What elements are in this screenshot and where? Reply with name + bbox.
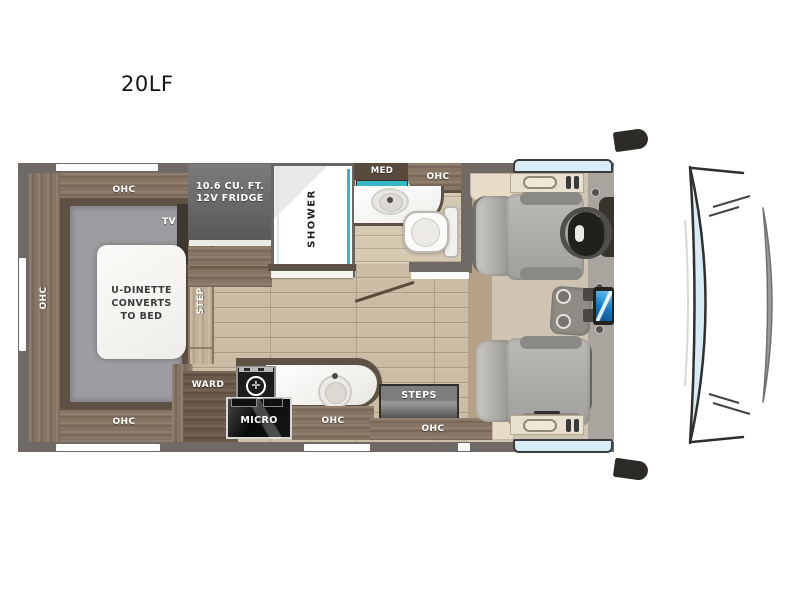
shower-sill — [271, 271, 353, 278]
steering-wheel-badge — [575, 225, 584, 242]
door-handle-bottom — [523, 419, 557, 432]
fridge-counter-edge — [189, 240, 271, 246]
hood-line — [685, 220, 688, 386]
window — [304, 444, 370, 451]
door-latch-icon — [574, 419, 579, 432]
steering-wheel-hub — [568, 212, 604, 256]
side-mirror-top — [613, 128, 649, 153]
dinette-label: U-DINETTE CONVERTS TO BED — [97, 284, 186, 323]
shower-sill-dark — [268, 264, 356, 271]
shower-glass-edge — [277, 169, 279, 265]
cab-window-bottom — [513, 439, 613, 453]
micro-label: MICRO — [226, 415, 292, 426]
accent-line — [709, 207, 739, 216]
door-latch-icon — [574, 176, 579, 189]
toilet-seat — [411, 218, 440, 247]
dinette-label-line2: CONVERTS — [97, 297, 186, 310]
faucet-icon — [332, 373, 338, 379]
fridge-label: 10.6 CU. FT. 12V FRIDGE — [188, 181, 272, 205]
dash-vent-icon — [591, 188, 600, 197]
window — [56, 164, 158, 171]
fridge-drawer-seam — [190, 266, 270, 268]
door-latch-icon — [566, 419, 571, 432]
ohc-label-bath: OHC — [408, 172, 468, 182]
dash-vent-icon — [595, 325, 604, 334]
window — [56, 444, 160, 451]
faucet-icon — [387, 197, 393, 203]
ohc-label-top-left: OHC — [60, 185, 188, 195]
cupholder-icon — [556, 314, 571, 329]
ohc-label-entry: OHC — [370, 424, 496, 434]
cab-window-top — [513, 159, 613, 173]
steps-label: STEPS — [379, 390, 459, 401]
accent-line — [709, 394, 739, 403]
infotainment-glare — [596, 291, 612, 321]
page-title: 20LF — [121, 72, 174, 96]
cupholder-icon — [556, 289, 571, 304]
microwave-vent — [231, 398, 257, 407]
ward-label: WARD — [183, 380, 233, 390]
cooktop-knob — [258, 368, 264, 371]
window — [19, 258, 26, 351]
driver-seat-armrest — [520, 192, 582, 205]
cab-nose-outline — [655, 150, 790, 460]
dinette-label-line3: TO BED — [97, 310, 186, 323]
tv-label: TV — [150, 217, 176, 227]
fridge-label-line2: 12V FRIDGE — [188, 193, 272, 205]
bathroom-door-sill — [411, 272, 469, 279]
passenger-seat-armrest — [520, 336, 582, 349]
fridge-label-line1: 10.6 CU. FT. — [188, 181, 272, 193]
burner-icon: ✛ — [246, 376, 266, 396]
step-seam — [190, 347, 212, 349]
door-handle-top — [523, 176, 557, 189]
cooktop-knob — [244, 368, 250, 371]
windshield — [690, 167, 706, 443]
shower-teal-accent — [347, 169, 350, 271]
roof-line-top — [692, 168, 743, 173]
accent-line — [713, 196, 750, 207]
side-mirror-bottom — [613, 458, 649, 482]
window — [458, 443, 470, 451]
driver-seat-armrest — [520, 267, 582, 280]
med-label: MED — [354, 166, 410, 176]
front-bumper — [763, 208, 772, 402]
floorplan-page: 20LF U-DINETTE CONVERTS TO BED OHC OHC O… — [0, 0, 800, 600]
shower-label: SHOWER — [307, 188, 318, 250]
ohc-label-left-side: OHC — [39, 276, 49, 320]
ohc-label-kitchen: OHC — [292, 416, 374, 426]
microwave-vent — [263, 398, 283, 407]
kitchen-sink-basin — [325, 382, 347, 404]
dinette-label-line1: U-DINETTE — [97, 284, 186, 297]
door-latch-icon — [566, 176, 571, 189]
door-step-trim — [534, 411, 560, 414]
ohc-label-bottom-left: OHC — [60, 417, 188, 427]
roof-line-bottom — [692, 437, 743, 442]
accent-line — [713, 403, 750, 414]
bathroom-wall-bottom — [409, 262, 472, 272]
